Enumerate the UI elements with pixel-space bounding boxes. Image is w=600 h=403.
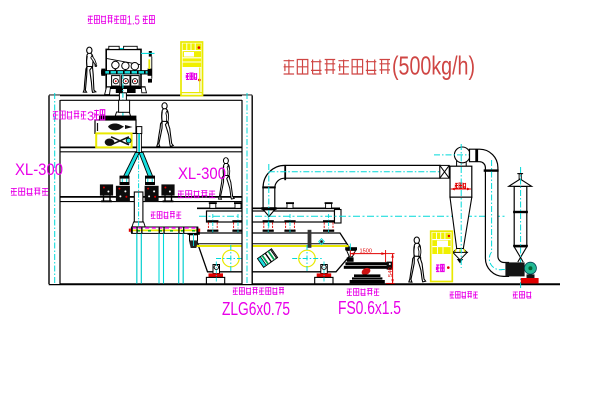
svg-text:ZLG6x0.75: ZLG6x0.75 — [222, 299, 290, 319]
svg-text:XL-300: XL-300 — [15, 160, 63, 179]
svg-text:1.5: 1.5 — [127, 13, 140, 28]
svg-text:3: 3 — [87, 109, 94, 124]
svg-text:540: 540 — [388, 267, 394, 277]
svg-text:XL-300: XL-300 — [178, 164, 226, 183]
svg-text:FS0.6x1.5: FS0.6x1.5 — [338, 298, 401, 318]
svg-text:(500kg/h): (500kg/h) — [392, 51, 475, 81]
svg-text:1500: 1500 — [360, 249, 372, 255]
